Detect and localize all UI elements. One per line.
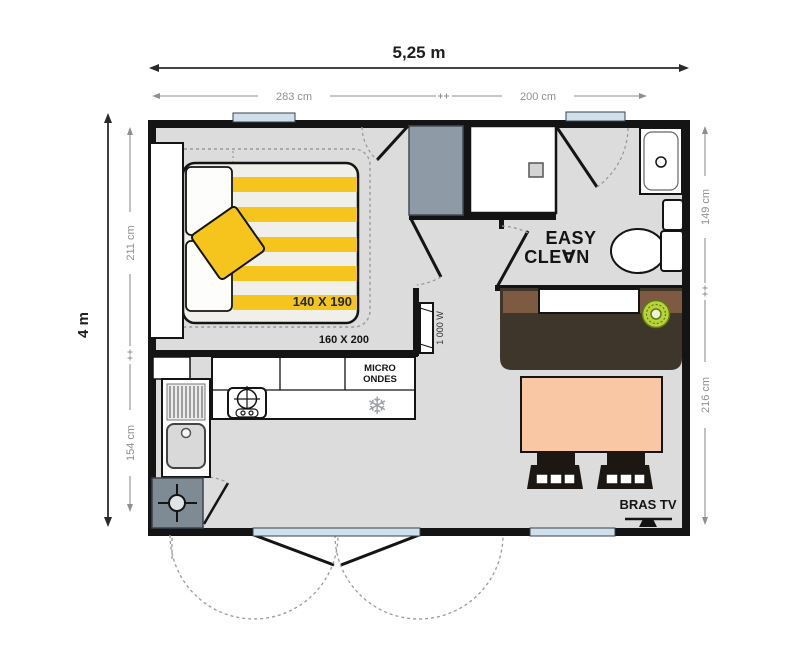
headboard <box>150 143 183 338</box>
bed-size-label: 140 X 190 <box>293 294 352 309</box>
logo-line1: EASY <box>545 228 596 248</box>
bed-size-alt-label: 160 X 200 <box>319 334 369 346</box>
shower-drain <box>529 163 543 177</box>
total-height-label: 4 m <box>75 312 92 338</box>
drainboard-hatch <box>170 386 202 418</box>
top-segment-2-label: 200 cm <box>520 91 556 103</box>
french-door-right-leaf <box>341 535 419 565</box>
floor-plan-page: 140 X 190 160 X 200 EASY CLE∀N <box>0 0 805 658</box>
wardrobe <box>409 126 463 215</box>
sink-unit <box>162 379 210 477</box>
window-bathroom <box>566 112 625 121</box>
tech-unit <box>152 478 203 528</box>
microwave-label-line2: ONDES <box>363 374 397 385</box>
valve-icon <box>169 495 185 511</box>
right-segment-2-label: 216 cm <box>700 377 712 413</box>
bathroom-door-stub <box>499 220 504 229</box>
microwave-label-line1: MICRO <box>364 363 396 374</box>
sink-drain-icon <box>182 429 191 438</box>
top-segment-1-label: 283 cm <box>276 91 312 103</box>
toilet-tank <box>661 231 683 271</box>
washbasin <box>640 128 682 194</box>
dimension-right-segments <box>703 129 708 522</box>
total-width-label: 5,25 m <box>393 43 446 62</box>
heater-power-label: 1 000 W <box>435 311 445 345</box>
french-door-left-leaf <box>254 535 334 565</box>
wall-hall <box>413 288 419 356</box>
dimension-total-width: 5,25 m <box>149 43 689 72</box>
toilet-bowl <box>611 229 665 273</box>
kitchen-shelf <box>153 357 190 379</box>
stove <box>228 386 266 418</box>
dimension-top-segments <box>154 94 644 99</box>
stool <box>643 301 670 328</box>
right-segment-1-label: 149 cm <box>700 189 712 225</box>
bench-tray <box>539 289 639 313</box>
snowflake-icon: ❄ <box>367 393 387 420</box>
logo-line2: CLE∀N <box>524 247 589 267</box>
dining-table <box>521 377 662 452</box>
window-living <box>530 528 615 536</box>
french-door-glass <box>253 528 420 536</box>
window-bedroom <box>233 113 295 122</box>
tv-bracket-label: BRAS TV <box>619 497 676 512</box>
dimension-total-height: 4 m <box>75 113 112 527</box>
faucet-icon <box>656 157 666 167</box>
floor-plan: 140 X 190 160 X 200 EASY CLE∀N <box>0 0 805 658</box>
wall-bedroom-kitchen <box>152 350 418 357</box>
left-segment-1-label: 211 cm <box>125 225 137 260</box>
left-segment-2-label: 154 cm <box>125 425 137 461</box>
